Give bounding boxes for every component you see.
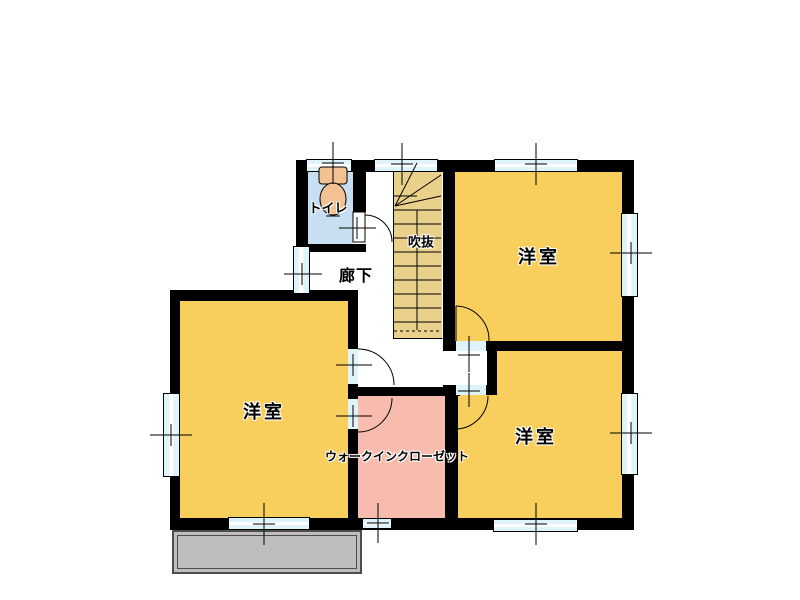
label-stairwell-void: 吹抜 bbox=[408, 232, 434, 251]
label-toilet: トイレ bbox=[308, 198, 347, 217]
door-swing-arc bbox=[358, 349, 394, 385]
door-leaf bbox=[353, 212, 365, 242]
label-bedroom-ne: 洋室 bbox=[518, 243, 560, 269]
label-walk-in-closet: ウォークインクローゼット bbox=[325, 448, 469, 465]
staircase bbox=[394, 163, 443, 339]
plan-linework bbox=[0, 0, 800, 600]
label-bedroom-se: 洋室 bbox=[515, 423, 557, 449]
floor-plan: トイレ 廊下 吹抜 洋室 洋室 洋室 ウォークインクローゼット bbox=[0, 0, 800, 600]
door-swing-arc bbox=[358, 398, 392, 432]
label-bedroom-w: 洋室 bbox=[243, 398, 285, 424]
label-hallway: 廊下 bbox=[339, 262, 373, 286]
door-swing-arc bbox=[456, 306, 489, 341]
door-swing-arc bbox=[456, 396, 488, 429]
